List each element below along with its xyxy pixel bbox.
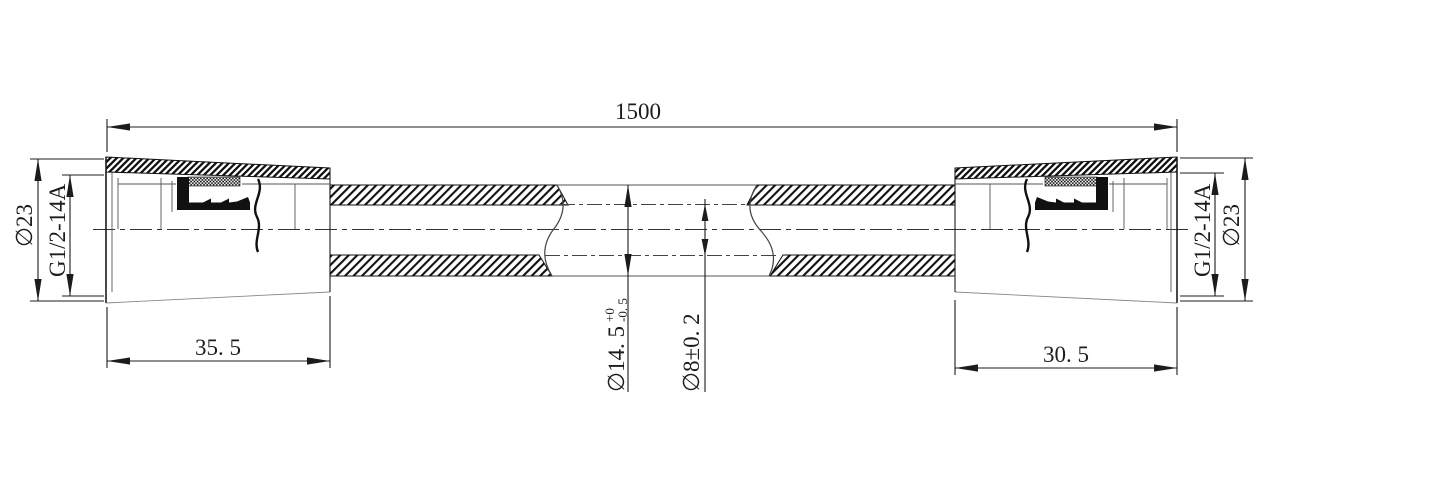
hose-wall-hatch-bottom-right (770, 255, 955, 276)
dim-hose-outer-diameter: ∅14. 5 +0 -0. 5 (602, 185, 632, 392)
arrowhead (624, 185, 631, 207)
arrowhead (307, 357, 330, 364)
hose-inner-diameter-label: ∅8±0. 2 (679, 313, 704, 392)
arrowhead (107, 123, 130, 130)
seal-vertical-bar (177, 177, 189, 210)
left-outer-diameter-label: ∅23 (12, 204, 37, 247)
arrowhead (955, 364, 978, 371)
dim-left-fitting-length: 35. 5 (107, 296, 330, 368)
nut-section-hatch (106, 157, 330, 179)
overall-length-label: 1500 (615, 99, 661, 124)
left-fitting-length-label: 35. 5 (195, 335, 241, 360)
right-thread-label: G1/2-14A (1190, 183, 1215, 277)
arrowhead (702, 239, 709, 256)
arrowhead (107, 357, 130, 364)
arrowhead (34, 159, 41, 181)
hose (330, 185, 955, 276)
dim-hose-inner-diameter: ∅8±0. 2 (679, 199, 708, 392)
dim-right-fitting-length: 30. 5 (955, 300, 1177, 375)
dim-right-thread: G1/2-14A (1180, 173, 1224, 296)
hose-drawing: 1500 (0, 0, 1445, 477)
hose-outer-tolerance-lower: -0. 5 (615, 298, 630, 322)
hose-wall-hatch-top-left (330, 185, 568, 205)
arrowhead (1241, 279, 1248, 301)
arrowhead (34, 279, 41, 301)
arrowhead (624, 254, 631, 276)
right-fitting-length-label: 30. 5 (1043, 342, 1089, 367)
seal-toothed-bar (1035, 197, 1096, 210)
hose-wall-hatch-bottom-left (330, 255, 552, 276)
arrowhead (702, 204, 709, 221)
dim-left-thread: G1/2-14A (45, 175, 104, 296)
hose-outer-diameter-label: ∅14. 5 (604, 326, 629, 392)
arrowhead (1241, 158, 1248, 180)
left-thread-label: G1/2-14A (45, 183, 70, 277)
crimp-wavy-line (255, 179, 260, 252)
seal-toothed-bar (189, 197, 250, 210)
arrowhead (1154, 123, 1177, 130)
cone-bottom-edge (955, 292, 1177, 303)
crimp-wavy-line (1025, 179, 1030, 252)
seal-dotted-band (1045, 177, 1097, 186)
nut-section-hatch (955, 157, 1177, 179)
technical-drawing-canvas: 1500 (0, 0, 1445, 477)
right-outer-diameter-label: ∅23 (1219, 204, 1244, 247)
hose-wall-hatch-top-right (747, 185, 955, 205)
cone-bottom-edge (106, 292, 330, 303)
seal-dotted-band (188, 177, 240, 186)
seal-vertical-bar (1096, 177, 1108, 210)
dim-overall-length: 1500 (107, 99, 1177, 152)
arrowhead (1154, 364, 1177, 371)
